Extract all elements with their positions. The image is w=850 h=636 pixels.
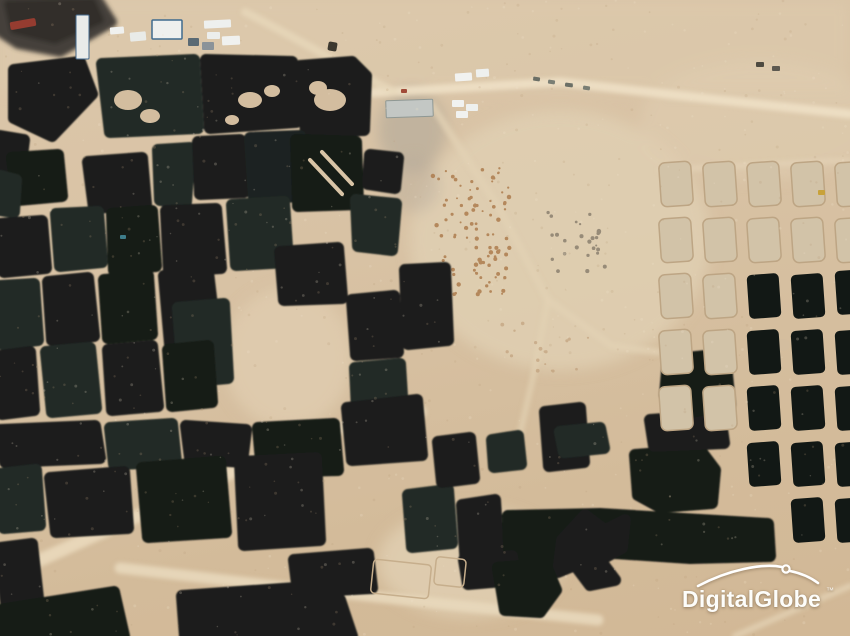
satellite-image: DigitalGlobe ™ [0,0,850,636]
satellite-canvas [0,0,850,636]
